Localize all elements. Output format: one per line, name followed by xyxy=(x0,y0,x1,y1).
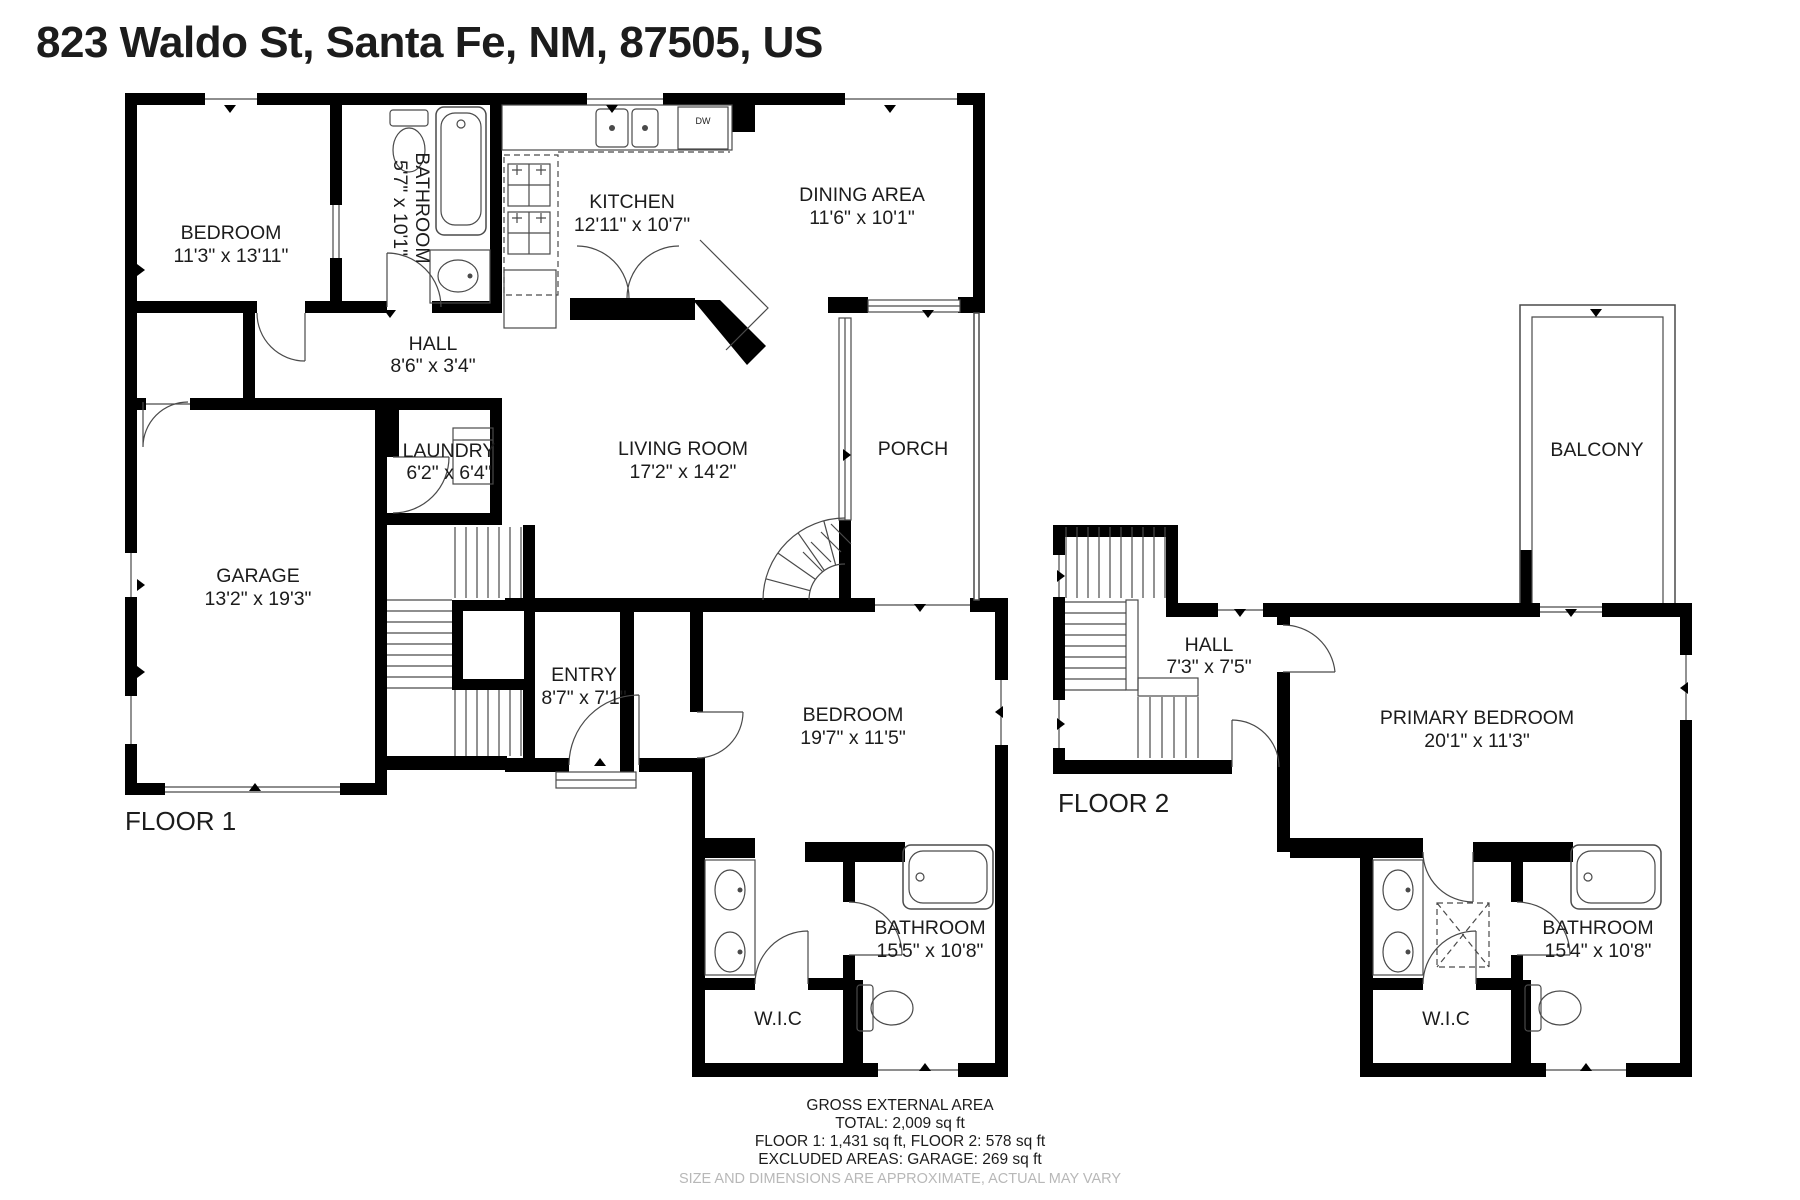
room-dims-primary-bedroom: 20'1" x 11'3" xyxy=(1424,730,1530,752)
room-label-bathroom-bottom: BATHROOM xyxy=(874,917,985,939)
porch-screen-wall xyxy=(839,318,851,520)
window xyxy=(330,205,342,258)
footer-disclaimer: SIZE AND DIMENSIONS ARE APPROXIMATE, ACT… xyxy=(679,1171,1121,1187)
stove-icon xyxy=(508,164,550,254)
room-dims-bedroom2: 19'7" x 11'5" xyxy=(800,727,906,749)
shower-icon xyxy=(1437,903,1489,967)
footer-total: TOTAL: 2,009 sq ft xyxy=(835,1115,965,1132)
room-label-wic2: W.I.C xyxy=(1422,1008,1470,1030)
room-dims-hall1: 8'6" x 3'4" xyxy=(390,355,475,377)
fixtures xyxy=(390,105,1661,1031)
counter-icon xyxy=(504,270,556,328)
window xyxy=(845,93,957,105)
door-arc xyxy=(755,931,808,984)
floor1-label: FLOOR 1 xyxy=(125,806,236,836)
room-label-laundry: LAUNDRY xyxy=(403,440,496,462)
window xyxy=(125,553,137,597)
room-label-entry: ENTRY xyxy=(551,664,617,686)
porch-right-wall xyxy=(974,313,979,600)
window xyxy=(878,1063,958,1077)
room-dims-garage: 13'2" x 19'3" xyxy=(205,588,312,610)
room-label-bedroom1: BEDROOM xyxy=(181,222,282,244)
toilet-icon xyxy=(1525,985,1581,1031)
footer-excluded: EXCLUDED AREAS: GARAGE: 269 sq ft xyxy=(758,1151,1042,1168)
sink-icon xyxy=(430,250,490,303)
door-arc xyxy=(1423,931,1476,984)
room-dims-entry: 8'7" x 7'1" xyxy=(541,687,626,709)
room-dims-hall2: 7'3" x 7'5" xyxy=(1166,656,1251,678)
entry-step xyxy=(556,772,636,788)
window xyxy=(205,93,257,105)
room-label-dining: DINING AREA xyxy=(799,184,925,206)
room-dims-laundry: 6'2" x 6'4" xyxy=(406,462,491,484)
room-dims-bathroom-bottom: 15'5" x 10'8" xyxy=(877,940,984,962)
door-arc xyxy=(1423,852,1473,902)
door-arc xyxy=(1283,625,1335,672)
room-dims-kitchen: 12'11" x 10'7" xyxy=(574,214,690,236)
footer-floors: FLOOR 1: 1,431 sq ft, FLOOR 2: 578 sq ft xyxy=(755,1133,1046,1150)
page-title: 823 Waldo St, Santa Fe, NM, 87505, US xyxy=(36,18,823,67)
bathtub-icon xyxy=(436,107,486,235)
dishwasher-label: DW xyxy=(696,116,711,126)
window xyxy=(587,93,663,105)
room-label-kitchen: KITCHEN xyxy=(589,191,675,213)
footer-heading: GROSS EXTERNAL AREA xyxy=(806,1097,994,1114)
door-arc xyxy=(257,313,305,361)
floorplan-canvas: 823 Waldo St, Santa Fe, NM, 87505, US BE… xyxy=(0,0,1800,1200)
room-label-bathroom2: BATHROOM xyxy=(1542,917,1653,939)
floorplan-page: 823 Waldo St, Santa Fe, NM, 87505, US BE… xyxy=(0,0,1800,1200)
bathtub-icon xyxy=(903,845,993,909)
floor2-label: FLOOR 2 xyxy=(1058,788,1169,818)
porch-screen-top xyxy=(868,300,960,312)
room-label-garage: GARAGE xyxy=(216,565,299,587)
room-label-living: LIVING ROOM xyxy=(618,438,748,460)
room-label-bedroom2: BEDROOM xyxy=(803,704,904,726)
room-label-hall1: HALL xyxy=(409,333,458,355)
toilet-icon xyxy=(857,985,913,1031)
room-label-porch: PORCH xyxy=(878,438,948,460)
room-dims-bathroom2: 15'4" x 10'8" xyxy=(1545,940,1652,962)
room-label-primary-bedroom: PRIMARY BEDROOM xyxy=(1380,707,1574,729)
room-label-hall2: HALL xyxy=(1185,634,1234,656)
window xyxy=(146,398,190,410)
door-arc xyxy=(577,246,679,298)
room-dims-bedroom1: 11'3" x 13'11" xyxy=(174,245,289,267)
door-arc xyxy=(1232,720,1279,767)
room-label-wic1: W.I.C xyxy=(754,1008,802,1030)
room-dims-dining: 11'6" x 10'1" xyxy=(809,207,915,229)
room-dims-bathroom-top: 5'7" x 10'1" xyxy=(389,160,411,256)
room-label-bathroom-top: BATHROOM xyxy=(411,152,433,263)
bathtub-icon xyxy=(1571,845,1661,909)
window xyxy=(125,696,137,744)
room-dims-living: 17'2" x 14'2" xyxy=(630,461,737,483)
footer: GROSS EXTERNAL AREA TOTAL: 2,009 sq ft F… xyxy=(679,1097,1121,1187)
door-arc xyxy=(697,712,743,758)
vanity-icon xyxy=(1373,860,1423,975)
vanity-icon xyxy=(705,860,755,975)
curved-stairs-icon xyxy=(763,518,851,600)
room-label-balcony: BALCONY xyxy=(1550,439,1643,461)
